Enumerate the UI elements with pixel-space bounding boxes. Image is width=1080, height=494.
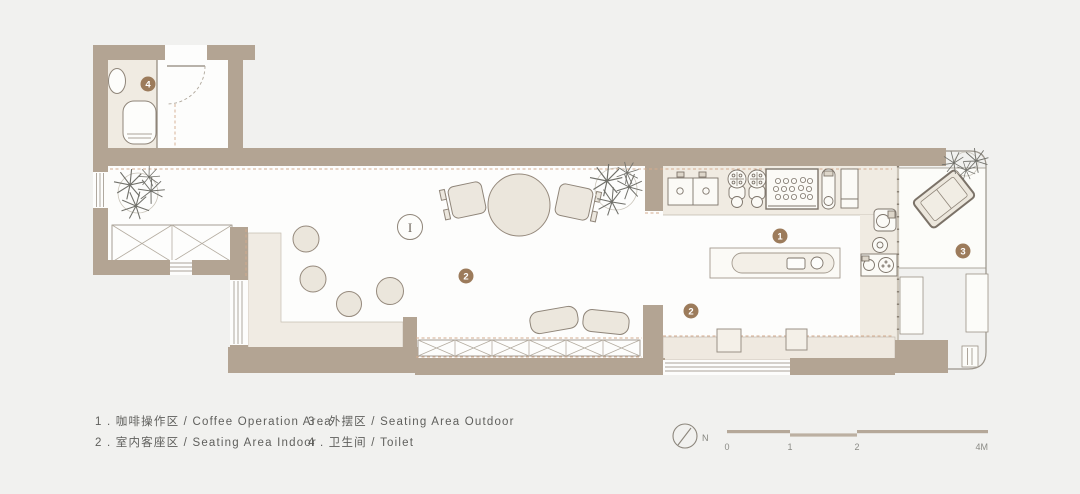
legend-item-coffee-operation-area: 1 . 咖啡操作区 / Coffee Operation Area (95, 412, 332, 433)
legend-label: 3 . 外摆区 / Seating Area Outdoor (308, 416, 515, 428)
legend-label: 4 . 卫生间 / Toilet (308, 437, 414, 449)
planter-box (966, 274, 988, 332)
round-table (488, 174, 550, 236)
water-boiler-icon (822, 169, 835, 209)
legend-label: 2 . 室内客座区 / Seating Area Indoor (95, 437, 317, 449)
svg-text:N: N (702, 433, 709, 443)
svg-text:0: 0 (724, 442, 729, 452)
legend-item-seating-area-indoor: 2 . 室内客座区 / Seating Area Indoor (95, 433, 332, 454)
side-table: I (398, 215, 423, 240)
sink-icon (109, 69, 126, 94)
round-appliance-icon (873, 238, 888, 253)
floor-cushion (582, 309, 630, 336)
toilet-icon (123, 101, 156, 144)
window-left (93, 172, 108, 208)
window-south (663, 360, 790, 375)
window-bench (663, 337, 895, 360)
coffee-equipment-strip (860, 215, 898, 340)
window-left-bottom (170, 260, 192, 275)
legend-label: 1 . 咖啡操作区 / Coffee Operation Area (95, 416, 332, 428)
svg-text:1: 1 (787, 442, 792, 452)
svg-text:2: 2 (854, 442, 859, 452)
area-badge-indoor-a: 2 (459, 269, 474, 284)
bench-table (717, 329, 741, 352)
sign-board-icon (962, 346, 978, 367)
svg-text:4M: 4M (975, 442, 988, 452)
ice-machine-icon (874, 209, 896, 231)
svg-text:1: 1 (777, 231, 783, 242)
stool (300, 266, 326, 292)
stool (293, 226, 319, 252)
floor-plan-page: I (0, 0, 1080, 494)
legend-item-seating-area-outdoor: 3 . 外摆区 / Seating Area Outdoor (308, 412, 515, 433)
svg-text:4: 4 (145, 79, 151, 90)
brew-station-icon (861, 254, 897, 276)
area-badge-indoor-b: 2 (684, 304, 699, 319)
island-counter (710, 248, 840, 278)
fridge-icon (841, 169, 858, 208)
window-west (230, 280, 248, 345)
area-badge-outdoor: 3 (956, 244, 971, 259)
stool (377, 278, 404, 305)
svg-text:3: 3 (960, 246, 965, 257)
planter-box (900, 277, 923, 334)
north-arrow-icon: N (673, 424, 709, 448)
area-badge-coffee: 1 (773, 229, 788, 244)
table-marker: I (408, 220, 412, 235)
svg-text:2: 2 (688, 306, 693, 317)
svg-text:2: 2 (463, 271, 468, 282)
espresso-machine-icon (766, 169, 818, 209)
area-badge-toilet: 4 (141, 77, 156, 92)
stool (337, 292, 362, 317)
scale-bar: 0 1 2 4M (724, 430, 988, 452)
bench-table (786, 329, 807, 350)
legend-item-toilet: 4 . 卫生间 / Toilet (308, 433, 515, 454)
